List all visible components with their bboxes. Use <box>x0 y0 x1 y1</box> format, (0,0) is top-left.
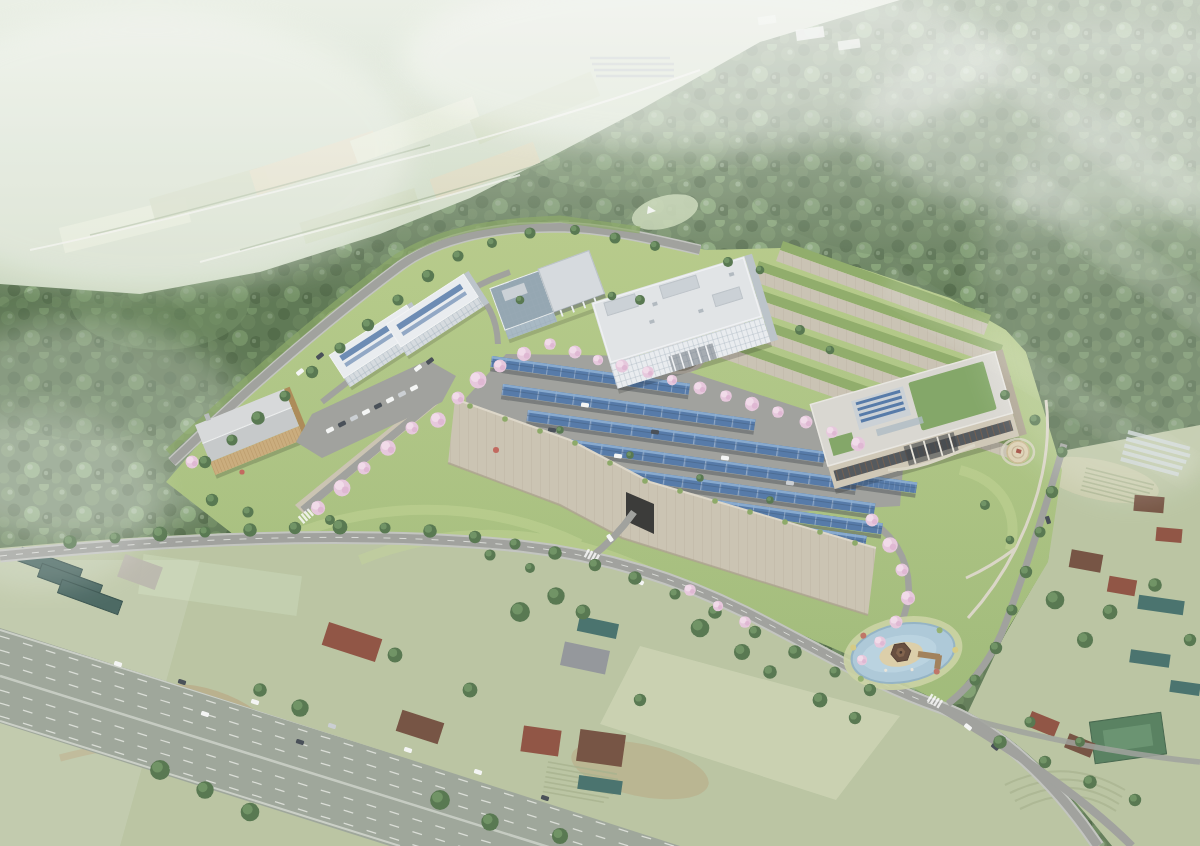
mist-overlay-final <box>0 0 1200 846</box>
aerial-campus-rendering <box>0 0 1200 846</box>
rendering-canvas <box>0 0 1200 846</box>
